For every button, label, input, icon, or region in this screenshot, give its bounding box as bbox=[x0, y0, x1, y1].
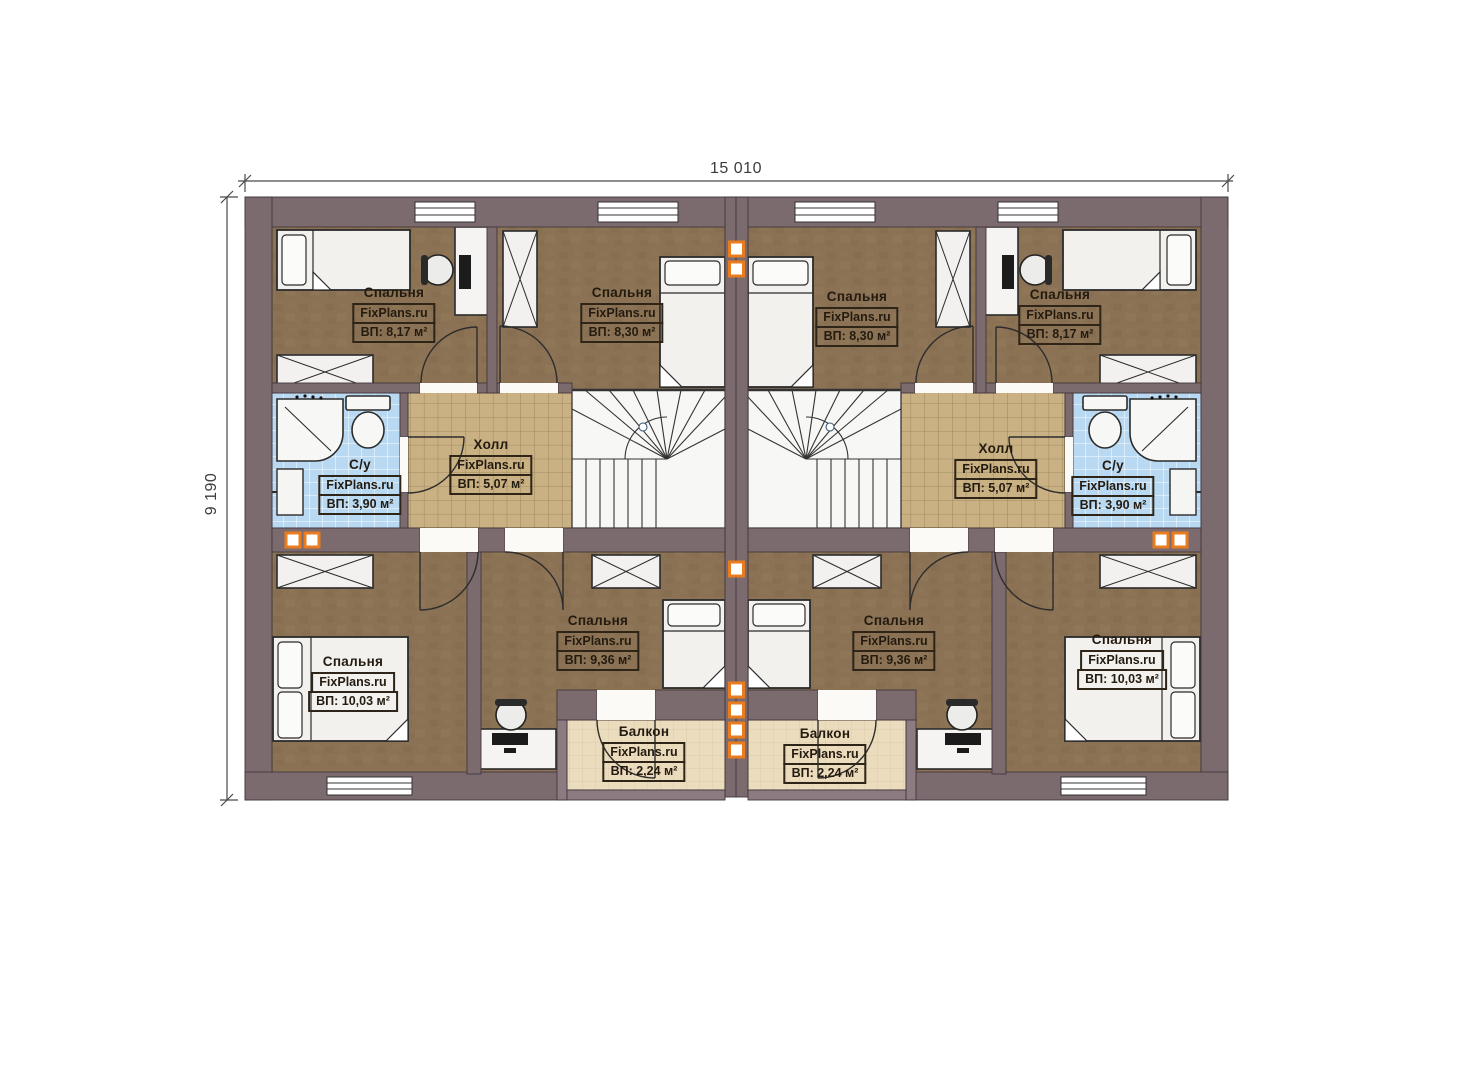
unit-right bbox=[736, 197, 1228, 800]
floor-plan-canvas: Спальня FixPlans.ru ВП: 8,17 м² Спальня … bbox=[0, 0, 1473, 1080]
dimension-width-label: 15 010 bbox=[710, 160, 762, 178]
unit-left bbox=[245, 197, 737, 800]
dimension-height-label: 9 190 bbox=[203, 473, 221, 516]
